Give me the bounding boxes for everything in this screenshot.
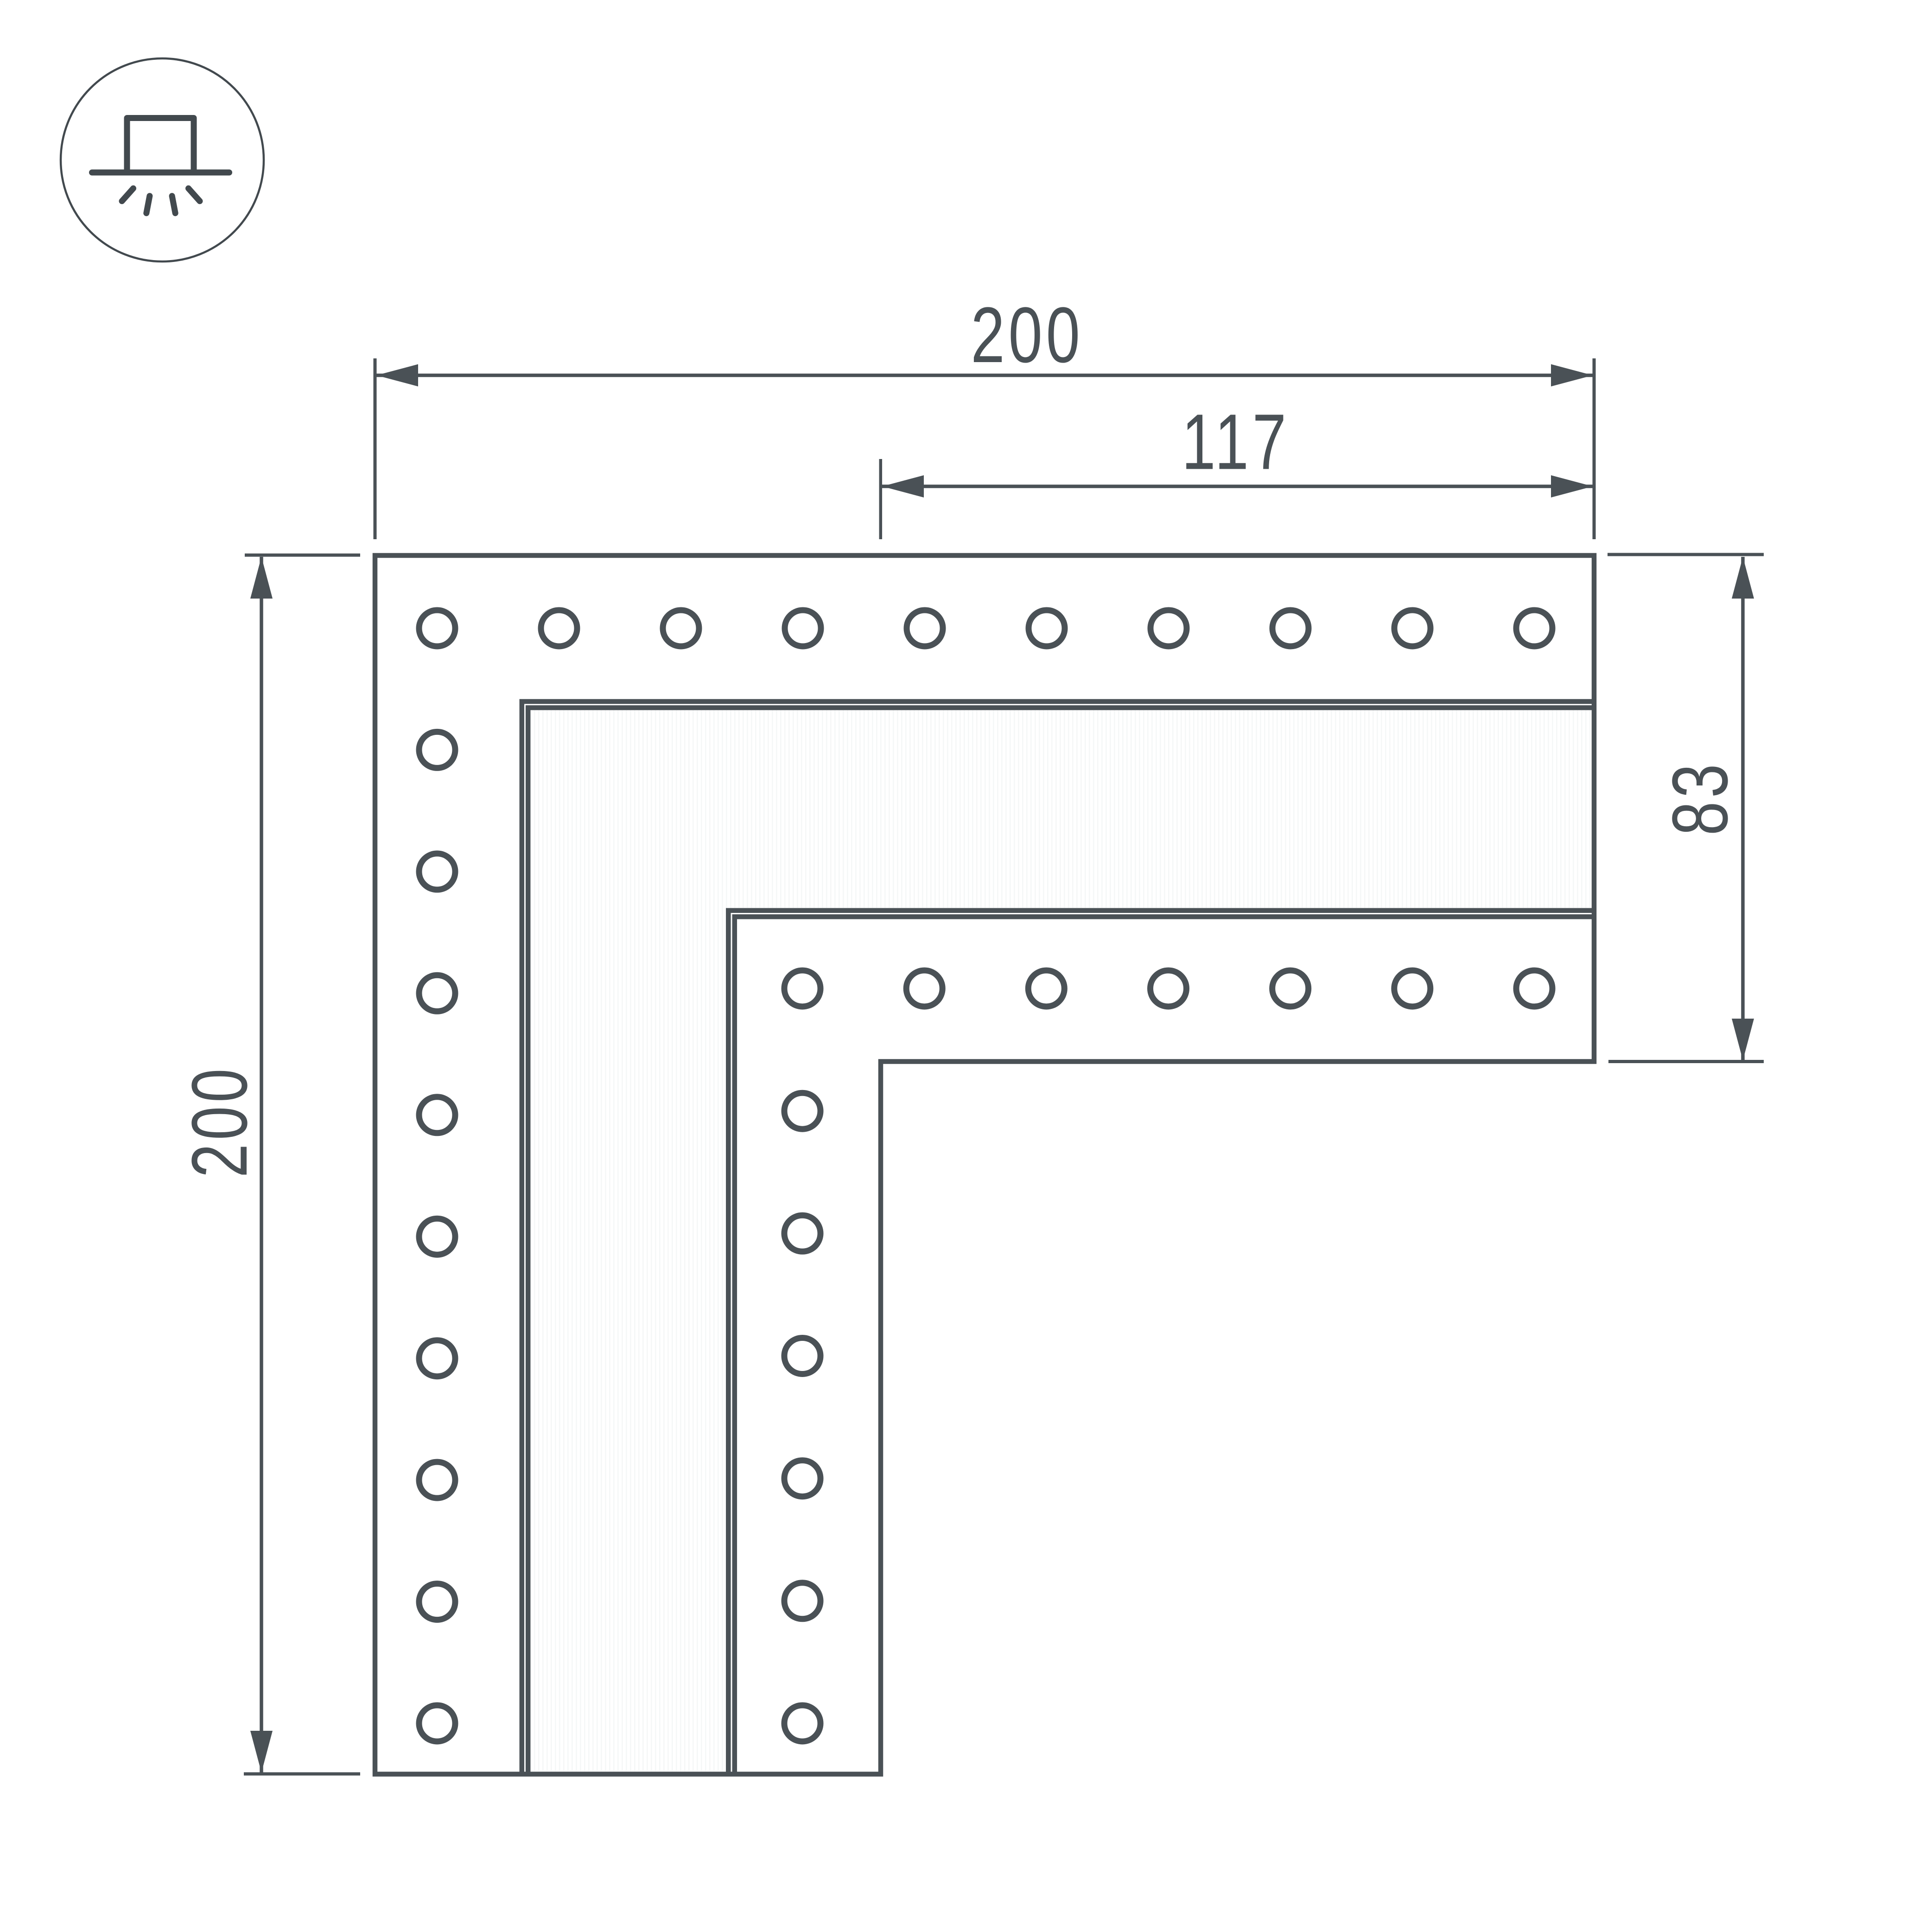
svg-text:200: 200: [176, 1065, 264, 1178]
svg-text:83: 83: [1656, 760, 1744, 835]
svg-text:200: 200: [971, 291, 1083, 379]
svg-text:117: 117: [1182, 398, 1290, 486]
